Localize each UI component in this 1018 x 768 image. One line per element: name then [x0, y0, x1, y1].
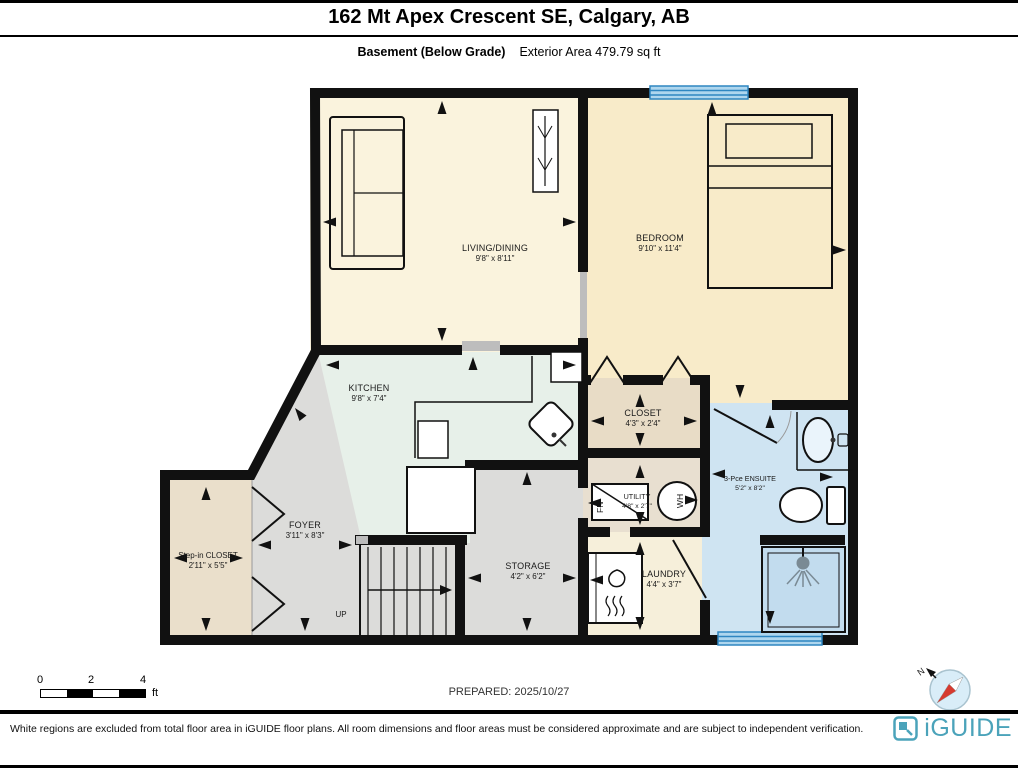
washer: [588, 553, 642, 623]
room-fills: [165, 88, 855, 640]
room-dims-storage: 4'2" x 6'2": [511, 572, 546, 581]
scale-tick: 4: [140, 674, 146, 686]
dishwasher: [418, 421, 448, 458]
plant-shelf: [533, 110, 558, 192]
freezer-box: [407, 467, 475, 533]
room-dims-step-in-closet: 2'11" x 5'5": [189, 561, 228, 570]
window-icon: [650, 86, 748, 99]
room-dims-living: 9'8" x 8'11": [476, 254, 515, 263]
toilet: [780, 487, 845, 524]
floor-plan: FN WH: [0, 0, 1018, 768]
shower-head: [797, 557, 810, 570]
north-label: N: [915, 666, 926, 678]
room-label-ensuite: 3-Pce ENSUITE: [724, 474, 776, 483]
room-label-living: LIVING/DINING: [462, 243, 528, 253]
scale-tick: 2: [88, 674, 94, 686]
shower: [762, 547, 845, 632]
room-bedroom: [583, 88, 855, 405]
window-icon: [718, 632, 822, 645]
room-dims-closet: 4'3" x 2'4": [626, 419, 661, 428]
room-label-foyer: FOYER: [289, 520, 321, 530]
iguide-brand-text: iGUIDE: [924, 714, 1012, 743]
floorplan-page: 162 Mt Apex Crescent SE, Calgary, AB Bas…: [0, 0, 1018, 768]
prepared-date: PREPARED: 2025/10/27: [0, 686, 1018, 698]
room-dims-bedroom: 9'10" x 11'4": [638, 244, 681, 253]
up-label: UP: [335, 610, 346, 619]
room-dims-kitchen: 9'8" x 7'4": [352, 394, 387, 403]
room-label-kitchen: KITCHEN: [349, 383, 390, 393]
iguide-icon: [892, 715, 919, 742]
room-dims-utility: 4'8" x 2'7": [622, 503, 652, 510]
disclaimer-text: White regions are excluded from total fl…: [10, 723, 870, 735]
room-dims-foyer: 3'11" x 8'3": [286, 531, 325, 540]
scale-tick: 0: [37, 674, 43, 686]
room-label-step-in-closet: Step-in CLOSET: [178, 551, 238, 560]
water-heater-label: WH: [675, 494, 685, 508]
room-label-laundry: LAUNDRY: [642, 569, 686, 579]
room-label-bedroom: BEDROOM: [636, 233, 684, 243]
footer-divider: [0, 710, 1018, 714]
room-label-storage: STORAGE: [505, 561, 550, 571]
iguide-logo: iGUIDE: [892, 714, 1012, 743]
room-label-utility: UTILITY: [624, 492, 651, 501]
bathroom-sink: [803, 418, 833, 462]
room-label-closet: CLOSET: [624, 408, 662, 418]
room-dims-laundry: 4'4" x 3'7": [647, 580, 682, 589]
room-dims-ensuite: 5'2" x 8'2": [735, 485, 765, 492]
